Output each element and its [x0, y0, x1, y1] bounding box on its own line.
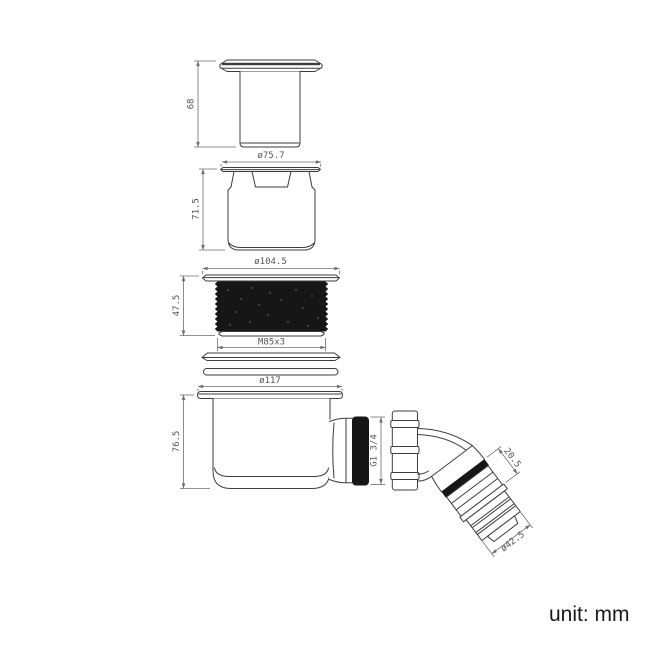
- dim-body-height: 76.5: [172, 395, 210, 489]
- dim-text-cover-height: 68: [187, 99, 197, 110]
- thread-texture: [215, 282, 328, 332]
- dim-text-ring-flange-dia: ø104.5: [254, 257, 287, 267]
- unit-note: unit: mm: [549, 603, 630, 627]
- dim-outlet-thread: G1 3/4: [370, 417, 386, 485]
- dim-text-outlet-thread: G1 3/4: [370, 434, 380, 467]
- outlet-thread-ring: [352, 417, 369, 486]
- insert-cup-part: [221, 168, 321, 251]
- dim-ring-height: 47.5: [172, 276, 215, 336]
- trap-body-part: [198, 392, 370, 489]
- dim-text-ring-height: 47.5: [172, 295, 182, 317]
- dim-insert-height: 71.5: [192, 169, 226, 250]
- dim-text-cover-flange-dia: ø75.7: [257, 151, 284, 161]
- technical-drawing-canvas: 68 ø75.7 71.5 ø104.5: [0, 0, 650, 650]
- exploded-parts-drawing: 68 ø75.7 71.5 ø104.5: [0, 0, 650, 650]
- dim-text-elbow-segment-length: 20.5: [501, 446, 522, 469]
- dim-text-body-height: 76.5: [172, 431, 182, 453]
- cover-cap-part: [220, 60, 322, 147]
- dim-ring-flange-dia: ø104.5: [203, 257, 340, 274]
- elbow-connector-part: 20.5 ø42.5: [391, 411, 560, 563]
- dim-text-ring-thread: M85x3: [258, 338, 285, 348]
- dim-cover-height: 68: [187, 61, 237, 147]
- dim-text-insert-height: 71.5: [192, 198, 202, 220]
- elbow-angled-body: 20.5 ø42.5: [430, 428, 560, 562]
- dim-ring-thread: M85x3: [218, 338, 326, 352]
- dim-cover-flange-dia: ø75.7: [221, 151, 321, 167]
- dim-body-flange-dia: ø117: [198, 376, 342, 391]
- dim-text-body-flange-dia: ø117: [259, 376, 281, 386]
- threaded-locknut-part: [203, 275, 340, 336]
- sealing-washers-part: [202, 353, 340, 375]
